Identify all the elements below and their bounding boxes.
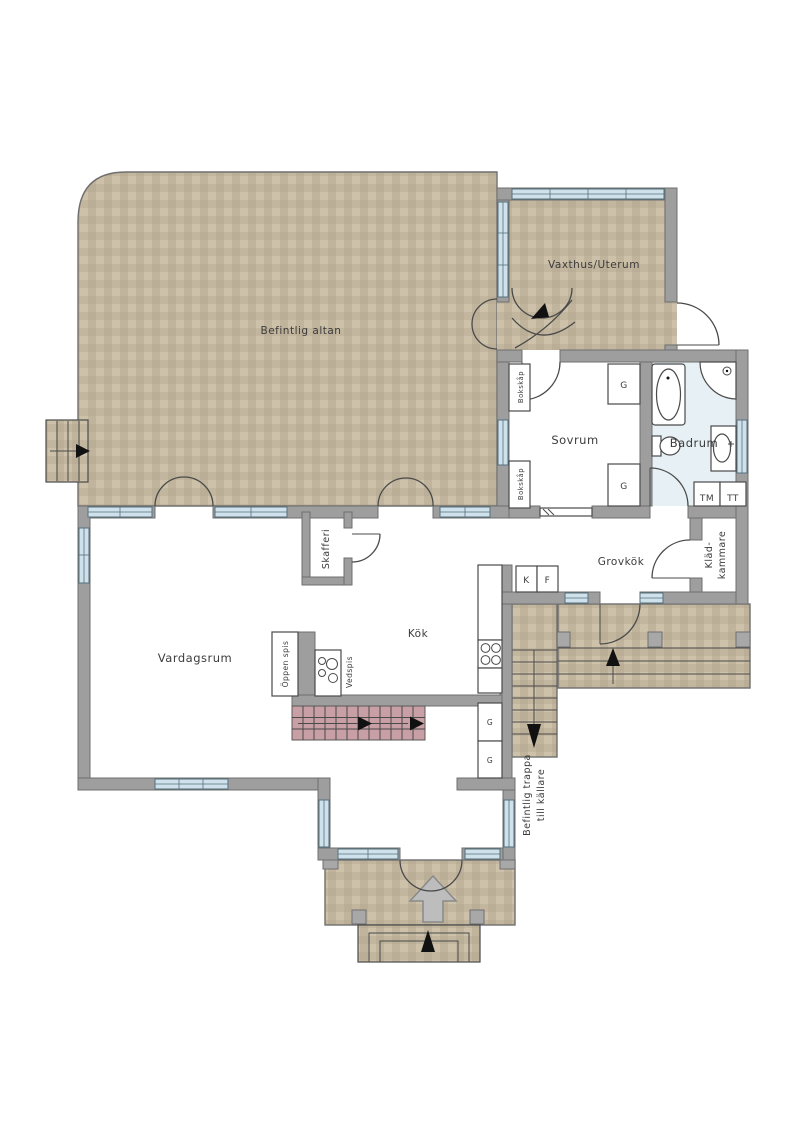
window [88,507,152,517]
window [79,528,89,583]
window [504,800,514,847]
label-basement-stairs-1: Befintlig trappa [522,754,533,836]
label-garderob-2: G [620,482,627,492]
kitchen-counter [478,668,502,693]
stove [478,640,502,668]
wardrobe: G [608,464,640,506]
label-skafferi: Skafferi [321,529,332,569]
freezer: F [537,566,558,592]
window [565,593,588,603]
terrace-side-steps [46,420,90,482]
label-vedspis: Vedspis [345,656,354,688]
window [440,507,490,517]
stairs-up [292,706,425,740]
label-sovrum: Sovrum [551,433,598,447]
label-grovkok: Grovkök [598,556,645,568]
label-g-kok-1: G [487,718,493,727]
bookcase: Bokskåp [509,364,530,411]
open-fireplace: Öppen spis [272,632,298,696]
tumble-dryer: TT [720,482,746,506]
label-badrum: Badrum [670,436,718,450]
label-basement-stairs-2: till källare [536,769,547,821]
kitchen-counter [478,565,502,640]
label-bokskap-1: Bokskåp [516,371,525,403]
label-kok: Kök [408,628,429,640]
window [640,593,663,603]
room-altan: Befintlig altan [78,172,497,506]
altan-deck [78,172,497,506]
label-kladkammare-1: Kläd- [704,542,715,569]
window [155,779,228,789]
entry-steps [358,925,480,962]
washing-machine: TM [694,482,720,506]
vaxthus-top-window [512,189,664,199]
window [498,420,508,465]
label-tt: TT [726,494,739,504]
vaxthus-left-window [498,202,508,297]
label-vardagsrum: Vardagsrum [158,651,232,665]
label-vaxthus: Vaxthus/Uterum [548,259,640,271]
chimney [298,632,315,697]
label-altan: Befintlig altan [261,325,342,337]
label-oppen-spis: Öppen spis [281,641,290,688]
entry-porch [323,853,515,925]
kitchen-cabinet: G [478,741,502,778]
label-garderob-1: G [620,381,627,391]
window [319,800,329,847]
bathtub [652,364,685,425]
sovrum-sliding-door [540,508,592,516]
label-kyl: K [523,576,530,586]
fridge: K [516,566,537,592]
window [338,849,398,859]
window [737,420,747,473]
label-tm: TM [699,494,714,504]
label-frys: F [545,576,551,586]
bookcase: Bokskåp [509,461,530,508]
vaxthus-floor [497,200,677,350]
label-bokskap-2: Bokskåp [516,468,525,500]
kitchen-cabinet: G [478,703,502,741]
window [465,849,500,859]
wardrobe: G [608,364,640,404]
east-porch [556,604,750,688]
window [215,507,287,517]
room-skafferi: Skafferi [321,529,332,569]
label-g-kok-2: G [487,756,493,765]
floor-plan: Befintlig altan [0,0,800,1132]
label-kladkammare-2: kammare [717,531,728,580]
